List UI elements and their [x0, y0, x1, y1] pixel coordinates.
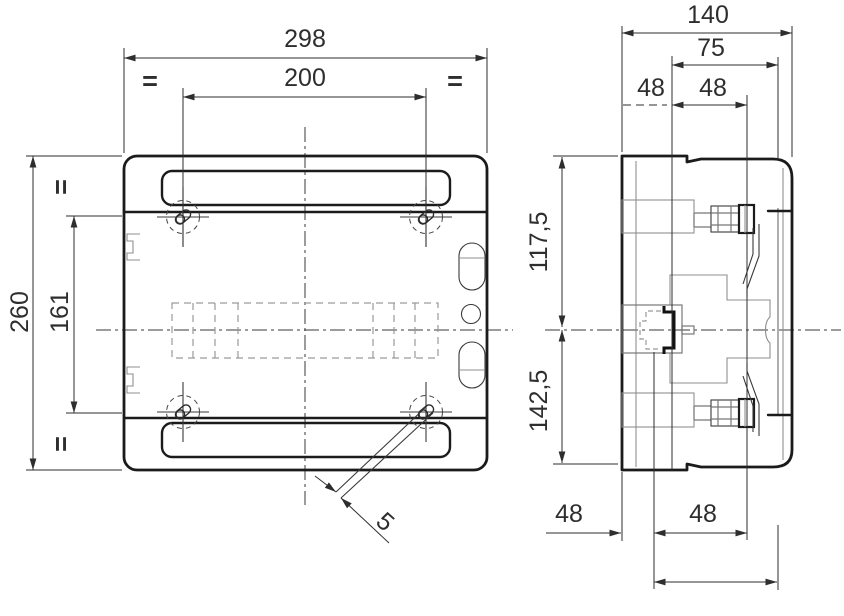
cable-entry-obround	[459, 342, 485, 388]
interior-profile	[670, 275, 770, 383]
side-body-outline	[622, 156, 792, 470]
dim-label-298: 298	[284, 25, 326, 53]
dim-label-48: 48	[689, 500, 717, 528]
terminal-block-top	[622, 200, 694, 233]
side-view: 140 75 48 48 48 48	[525, 1, 841, 590]
dim-label-48: 48	[637, 74, 665, 102]
cable-entry-obround	[459, 243, 485, 290]
top-cable-slot	[162, 171, 450, 205]
dim-label-161: 161	[46, 291, 74, 333]
front-view: 5 298 200 = = 260	[6, 25, 513, 543]
enclosure-dimension-drawing: 5 298 200 = = 260	[0, 0, 844, 616]
dim-label-117-5: 117,5	[525, 212, 553, 273]
dim-label-200: 200	[284, 64, 326, 92]
dim-height-161: 161 = =	[46, 179, 122, 452]
equal-spacing-mark: =	[46, 436, 76, 452]
dim-label-48: 48	[699, 74, 727, 102]
technical-drawing-page: 5 298 200 = = 260	[0, 0, 844, 616]
dim-label-75: 75	[697, 34, 725, 62]
equal-spacing-mark: =	[46, 179, 76, 195]
dim-label-5: 5	[370, 507, 399, 537]
strap-line	[341, 413, 433, 498]
dim-rail-position: 117,5 142,5	[525, 156, 618, 464]
dim-label-260: 260	[6, 291, 34, 333]
dim-label-140: 140	[687, 1, 729, 29]
dim-label-142-5: 142,5	[525, 370, 553, 433]
equal-spacing-mark: =	[142, 66, 158, 96]
dim-label-48: 48	[555, 500, 583, 528]
keyhole-slot	[400, 382, 452, 442]
bottom-cable-slot	[162, 423, 450, 457]
keyhole-slot	[157, 382, 209, 442]
cable-entry-circle	[462, 305, 481, 324]
left-edge-notch	[127, 234, 140, 260]
equal-spacing-mark: =	[447, 66, 463, 96]
dim-strap-5: 5	[315, 406, 433, 543]
terminal-block-bottom	[622, 393, 694, 427]
left-edge-notch	[127, 367, 140, 393]
